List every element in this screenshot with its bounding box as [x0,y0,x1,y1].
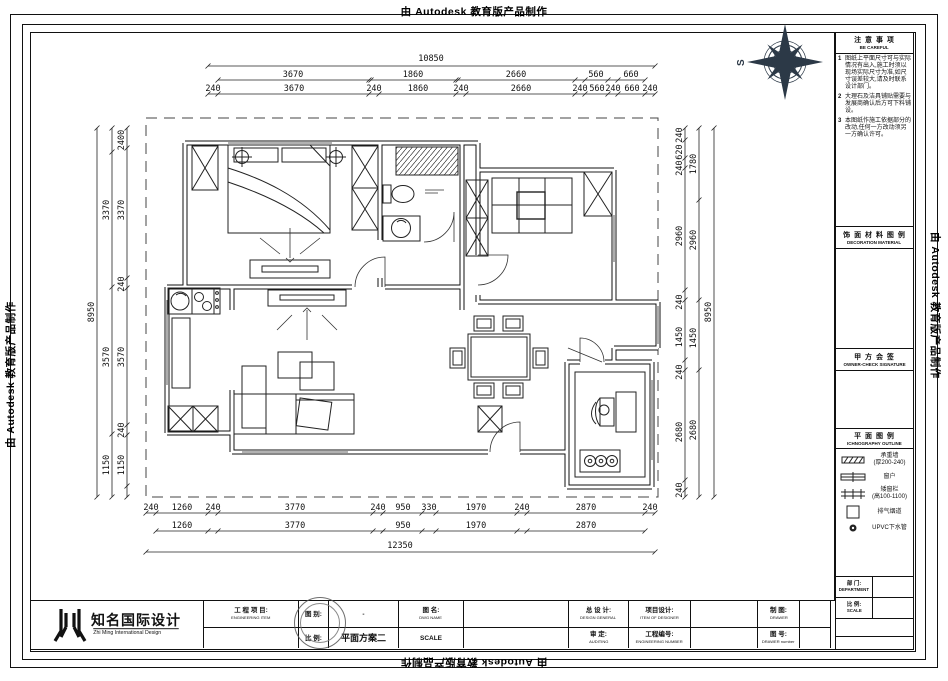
tatami-bed-icon [492,178,572,233]
kitchen-counter [172,318,190,388]
svg-text:2870: 2870 [576,503,596,513]
svg-text:3670: 3670 [284,84,304,94]
svg-text:240: 240 [514,503,529,513]
empty-row-2 [835,637,914,650]
svg-text:2960: 2960 [689,230,699,250]
svg-text:240: 240 [675,294,685,309]
notice-notes: 1 图纸上平面尺寸可与实际情况有出入,施工时须以现场实际尺寸为准,如尺寸误差较大… [835,54,914,227]
logo-mark-icon [53,607,87,643]
svg-text:240: 240 [370,503,385,513]
dining-table-icon [468,334,530,380]
dwg-name-value-empty [464,601,569,628]
svg-text:1150: 1150 [102,455,112,475]
svg-text:2400: 2400 [117,130,127,150]
sofa-icon [234,366,354,434]
svg-text:240: 240 [642,503,657,513]
legend-label: 承重墙 (厚200-240) [868,453,911,467]
svg-text:240: 240 [605,84,620,94]
burner-unit-icon [580,450,620,472]
bed-icon [228,145,330,233]
compass-south-label: S [736,59,747,66]
owner-sign-title: 甲 方 会 签 OWNER-CHECK SIGNATURE [835,349,914,371]
stove-icon [192,288,214,314]
item-designer-value-empty [691,601,758,628]
svg-text:240: 240 [675,160,685,175]
window-icon [838,471,868,483]
svg-text:1260: 1260 [172,503,192,513]
svg-text:240: 240 [205,503,220,513]
svg-text:660: 660 [624,84,639,94]
svg-text:240: 240 [117,276,127,291]
plan-legend-title: 平 面 图 例 ICHNOGRAPHY OUTLINE [835,429,914,449]
sidebar-panel: 注 意 事 项 BE CAREFUL 1 图纸上平面尺寸可与实际情况有出入,施工… [834,32,914,650]
svg-text:240: 240 [572,84,587,94]
legend-rail: 矮窗栏 (高100-1100) [838,487,911,501]
project-label: 工 程 项 目: ENGINEERING ITEM [204,601,299,628]
svg-text:1450: 1450 [689,328,699,348]
svg-text:240: 240 [675,482,685,497]
svg-text:240: 240 [642,84,657,94]
svg-text:240: 240 [453,84,468,94]
svg-text:240: 240 [366,84,381,94]
legend-duct: 排气烟道 [838,505,911,519]
cad-drawing-sheet: 由 Autodesk 教育版产品制作 由 Autodesk 教育版产品制作 由 … [0,0,948,681]
svg-text:660: 660 [623,70,638,80]
legend-window: 窗户 [838,471,911,483]
eng-number-value-empty [691,628,758,648]
empty-row-1 [835,619,914,637]
svg-text:3770: 3770 [285,521,305,531]
svg-text:2660: 2660 [506,70,526,80]
svg-text:560: 560 [588,70,603,80]
scale-value-empty [464,628,569,648]
legend-label: 排气烟道 [868,509,911,516]
dining [450,316,548,398]
auditing-label: 审 定: AUDITING [569,628,629,648]
svg-text:2680: 2680 [675,422,685,442]
svg-text:3670: 3670 [283,70,303,80]
svg-text:1260: 1260 [172,521,192,531]
toilet-icon [383,185,414,203]
dim-bottom-total: 12350 [387,541,413,551]
dim-left-total: 8950 [87,302,97,322]
legend-bearing-wall: 承重墙 (厚200-240) [838,453,911,467]
svg-text:1150: 1150 [117,455,127,475]
svg-text:2960: 2960 [675,226,685,246]
svg-text:1860: 1860 [403,70,423,80]
dwg-number-label: 图 号: DRAWER number [758,628,800,648]
svg-text:2660: 2660 [511,84,531,94]
svg-text:2680: 2680 [689,420,699,440]
dim-lines [95,64,717,555]
design-general-label: 总 设 计: DESIGN GENERAL [569,601,629,628]
coffee-table-icon [278,352,334,390]
svg-text:3370: 3370 [102,200,112,220]
legend-pipe: UPVC下水管 [838,523,911,533]
owner-sign-box-empty [835,371,914,429]
svg-text:240: 240 [205,84,220,94]
notice-title-en: BE CAREFUL [860,45,889,50]
drawer-label: 制 图: DRAWER [758,601,800,628]
ceiling-lamp-icon [232,147,346,167]
bearing-wall-icon [838,454,868,466]
drawer-value-empty [800,601,831,628]
dresser-tv-icon [250,228,330,278]
department-row: 部 门: DEPARTMENT [835,577,914,598]
title-block: 知名国际设计 Zhi Ming International Design 工 程… [30,600,836,650]
dwg-name-label: 图 名: DWG NAME [399,601,464,628]
material-title: 饰 面 材 料 图 例 DECORATION MATERIAL [835,227,914,249]
exhaust-duct-icon [838,505,868,519]
svg-text:3570: 3570 [102,347,112,367]
svg-text:620: 620 [675,144,685,159]
svg-text:240: 240 [117,422,127,437]
note-3: 3 本图纸作施工依据部分的改动,任何一方改动须另一方确认许可。 [838,118,911,139]
svg-text:240: 240 [143,503,158,513]
washbasin-icon [383,216,420,241]
drain-pipe-icon [838,523,868,533]
svg-text:3770: 3770 [285,503,305,513]
svg-text:3370: 3370 [117,200,127,220]
svg-text:240: 240 [675,127,685,142]
project-value-empty [204,628,299,648]
scale-row: 比 例: SCALE [835,598,914,619]
svg-text:950: 950 [395,503,410,513]
item-designer-label: 项目设计: ITEM OF DESIGNER [629,601,691,628]
material-box-empty [835,249,914,349]
dining-chairs [450,316,548,398]
floor-plan-drawing: 10850 3670 1860 2660 560 660 240 3670 24… [0,0,948,681]
scale-label: 比 例: SCALE [836,598,873,618]
bedroom2 [492,178,572,233]
svg-text:1970: 1970 [466,503,486,513]
dim-right-total: 8950 [704,302,714,322]
legend-label: UPVC下水管 [868,525,911,532]
shower-area [396,147,458,175]
railing-icon [838,488,868,500]
department-label: 部 门: DEPARTMENT [836,577,873,597]
legend-label: 窗户 [868,474,911,481]
scale-en-label: SCALE [399,628,464,648]
desk-icon [600,392,636,432]
review-stamp [294,597,346,649]
tv-cabinet-icon [268,290,346,340]
dwg-number-value-empty [800,628,831,648]
svg-text:1860: 1860 [408,84,428,94]
plan-legend: 承重墙 (厚200-240) 窗户 矮窗栏 (高100-1100) [835,449,914,577]
kitchen-sink-icon [168,288,192,314]
svg-text:950: 950 [395,521,410,531]
svg-text:560: 560 [589,84,604,94]
living-room [234,290,354,434]
bathroom [383,147,458,241]
compass-rose-icon: S [736,24,823,100]
svg-text:330: 330 [421,503,436,513]
eng-number-label: 工程编号: ENGINEERING NUMBER [629,628,691,648]
study [575,372,645,477]
svg-text:3570: 3570 [117,347,127,367]
logo-text: 知名国际设计 Zhi Ming International Design [91,613,181,637]
dim-top-total: 10850 [418,54,444,64]
svg-text:1450: 1450 [675,327,685,347]
svg-text:1970: 1970 [466,521,486,531]
svg-text:2870: 2870 [576,521,596,531]
notice-title: 注 意 事 项 BE CAREFUL [835,32,914,54]
legend-label: 矮窗栏 (高100-1100) [868,487,911,501]
note-1: 1 图纸上平面尺寸可与实际情况有出入,施工时须以现场实际尺寸为准,如尺寸误差较大… [838,56,911,91]
kitchen [168,288,220,388]
company-logo: 知名国际设计 Zhi Ming International Design [31,601,204,648]
control-strip [214,288,220,314]
notice-title-cn: 注 意 事 项 [854,35,895,45]
bedroom1 [228,145,346,278]
svg-text:240: 240 [675,364,685,379]
note-2: 2 大理石及洁具铺贴需要与发展商确认后方可下料铺设。 [838,94,911,115]
svg-text:1780: 1780 [689,154,699,174]
